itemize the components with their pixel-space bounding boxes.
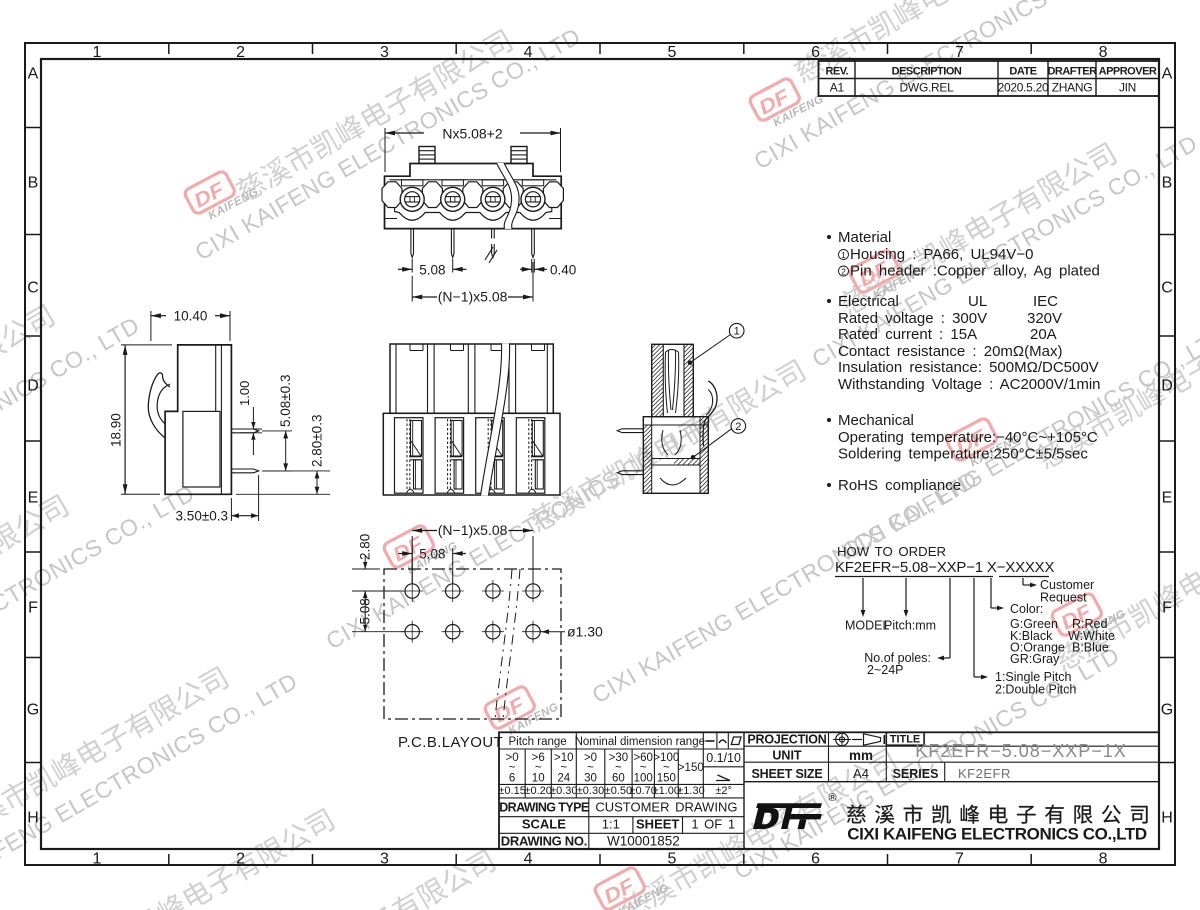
svg-text:1: 1 xyxy=(92,851,101,868)
svg-text:APPROVER: APPROVER xyxy=(1099,66,1157,78)
svg-text:D: D xyxy=(1161,378,1173,395)
svg-text:DESCRIPTION: DESCRIPTION xyxy=(892,66,962,78)
svg-text:SCALE: SCALE xyxy=(522,816,566,831)
svg-text:7: 7 xyxy=(955,851,964,868)
svg-text:DRAWING NO.: DRAWING NO. xyxy=(501,833,587,848)
svg-text:100: 100 xyxy=(634,773,653,785)
svg-text:±0.50: ±0.50 xyxy=(605,785,632,797)
svg-text:150: 150 xyxy=(657,773,676,785)
svg-text:H: H xyxy=(27,810,39,827)
svg-text:G: G xyxy=(27,702,39,719)
svg-text:Nx5.08+2: Nx5.08+2 xyxy=(442,126,503,142)
svg-text:3: 3 xyxy=(380,851,389,868)
svg-text:Rated voltage : 300V: Rated voltage : 300V xyxy=(838,310,987,327)
svg-text:D: D xyxy=(27,378,39,395)
svg-text:±1.30: ±1.30 xyxy=(677,785,704,797)
svg-text:10: 10 xyxy=(532,773,545,785)
svg-text:18.90: 18.90 xyxy=(109,413,124,447)
svg-text:5: 5 xyxy=(667,851,676,868)
svg-text:2~24P: 2~24P xyxy=(867,663,904,677)
svg-text:mm: mm xyxy=(849,748,873,763)
svg-text:ZHANG: ZHANG xyxy=(1052,81,1093,95)
svg-text:B: B xyxy=(28,175,39,192)
svg-text:2020.5.20: 2020.5.20 xyxy=(998,81,1049,95)
svg-text:0.40: 0.40 xyxy=(550,263,576,278)
svg-text:2: 2 xyxy=(236,44,245,61)
svg-text:Operating temperature:−40°C~+1: Operating temperature:−40°C~+105°C xyxy=(838,429,1098,446)
svg-text:2: 2 xyxy=(236,851,245,868)
svg-text:IEC: IEC xyxy=(1033,293,1058,310)
svg-text:CUSTOMER DRAWING: CUSTOMER DRAWING xyxy=(595,800,737,815)
svg-text:Nominal dimension range: Nominal dimension range xyxy=(575,736,705,748)
svg-text:5: 5 xyxy=(667,44,676,61)
svg-text:Housing : PA66, UL94V−0: Housing : PA66, UL94V−0 xyxy=(850,246,1033,263)
svg-text:P.C.B.LAYOUT: P.C.B.LAYOUT xyxy=(398,734,503,751)
svg-text:1: 1 xyxy=(841,250,846,260)
svg-text:®: ® xyxy=(829,792,837,804)
svg-text:7: 7 xyxy=(955,44,964,61)
svg-text:>150: >150 xyxy=(678,762,704,774)
svg-text:DRAFTER: DRAFTER xyxy=(1047,66,1097,78)
svg-text:2.80±0.3: 2.80±0.3 xyxy=(310,415,325,467)
svg-text:±0.30: ±0.30 xyxy=(550,785,577,797)
svg-text:W10001852: W10001852 xyxy=(607,833,680,848)
svg-text:Pin header :Copper alloy, Ag p: Pin header :Copper alloy, Ag plated xyxy=(850,263,1100,280)
svg-text:(N−1)x5.08: (N−1)x5.08 xyxy=(438,289,508,305)
svg-text:UL: UL xyxy=(968,293,987,310)
svg-text:1:1: 1:1 xyxy=(602,816,620,831)
svg-text:5.08±0.3: 5.08±0.3 xyxy=(278,375,293,427)
svg-text:C: C xyxy=(27,280,39,297)
svg-text:B: B xyxy=(1162,175,1173,192)
svg-text:Electrical: Electrical xyxy=(838,293,899,310)
svg-text:F: F xyxy=(28,600,38,617)
svg-text:Withstanding Voltage : AC2000V: Withstanding Voltage : AC2000V/1min xyxy=(838,376,1101,393)
svg-text:A4: A4 xyxy=(853,766,869,781)
svg-text:2: 2 xyxy=(735,421,741,433)
svg-text:JIN: JIN xyxy=(1119,81,1136,95)
svg-text:DRAWING TYPE: DRAWING TYPE xyxy=(499,801,589,815)
svg-text:5.08: 5.08 xyxy=(358,598,373,624)
svg-text:3.50±0.3: 3.50±0.3 xyxy=(176,509,228,524)
svg-text:CIXI KAIFENG ELECTRONICS CO.,L: CIXI KAIFENG ELECTRONICS CO.,LTD xyxy=(847,825,1147,844)
svg-text:Contact resistance : 20mΩ(Max): Contact resistance : 20mΩ(Max) xyxy=(838,343,1062,360)
svg-text:SHEET: SHEET xyxy=(636,816,679,831)
svg-text:6: 6 xyxy=(811,44,820,61)
svg-text:1.00: 1.00 xyxy=(237,381,252,406)
svg-text:4: 4 xyxy=(524,44,533,61)
svg-text:8: 8 xyxy=(1099,44,1108,61)
svg-text:±1.00: ±1.00 xyxy=(653,785,680,797)
svg-text:1: 1 xyxy=(92,44,101,61)
svg-text:±0.15: ±0.15 xyxy=(498,785,525,797)
svg-text:±0.30: ±0.30 xyxy=(577,785,604,797)
svg-text:60: 60 xyxy=(612,773,625,785)
svg-text:PROJECTION: PROJECTION xyxy=(747,733,826,747)
svg-text:Soldering temperature:250°C±5/: Soldering temperature:250°C±5/5sec xyxy=(838,446,1088,463)
svg-text:GR:Gray: GR:Gray xyxy=(1010,652,1060,666)
svg-text:Material: Material xyxy=(838,229,891,246)
svg-text:DATE: DATE xyxy=(1009,66,1036,78)
svg-text:C: C xyxy=(1161,280,1173,297)
svg-text:8: 8 xyxy=(1099,851,1108,868)
svg-text:4: 4 xyxy=(524,851,533,868)
svg-text:A1: A1 xyxy=(830,81,845,95)
svg-text:Insulation resistance: 500MΩ/D: Insulation resistance: 500MΩ/DC500V xyxy=(838,359,1099,376)
svg-text:G: G xyxy=(1161,702,1173,719)
svg-text:ø1.30: ø1.30 xyxy=(567,623,603,639)
svg-text:±0.20: ±0.20 xyxy=(524,785,551,797)
svg-text:6: 6 xyxy=(509,773,515,785)
svg-text:5.08: 5.08 xyxy=(419,547,445,562)
svg-text:Mechanical: Mechanical xyxy=(838,412,914,429)
svg-text:3: 3 xyxy=(380,44,389,61)
svg-text:SHEET SIZE: SHEET SIZE xyxy=(752,767,823,781)
svg-text:(N−1)x5.08: (N−1)x5.08 xyxy=(438,522,508,538)
svg-text:Pitch range: Pitch range xyxy=(509,736,567,748)
svg-text:1: 1 xyxy=(734,326,740,338)
svg-text:A: A xyxy=(1162,66,1173,83)
svg-text:Color:: Color: xyxy=(1010,602,1043,616)
svg-text:10.40: 10.40 xyxy=(174,308,208,323)
svg-text:30: 30 xyxy=(584,773,597,785)
svg-text:REV.: REV. xyxy=(825,66,848,78)
svg-text:2:Double Pitch: 2:Double Pitch xyxy=(995,683,1076,697)
svg-text:2: 2 xyxy=(841,267,846,277)
svg-text:E: E xyxy=(28,490,39,507)
svg-text:SERIES: SERIES xyxy=(893,767,939,781)
svg-text:HOW TO ORDER: HOW TO ORDER xyxy=(837,544,946,559)
svg-text:Pitch:mm: Pitch:mm xyxy=(884,619,936,633)
svg-text:KF2EFR−5.08−XXP−1 X−XXXXX: KF2EFR−5.08−XXP−1 X−XXXXX xyxy=(835,559,1054,576)
svg-text:Request: Request xyxy=(1040,591,1087,605)
svg-text:A: A xyxy=(28,66,39,83)
svg-text:6: 6 xyxy=(811,851,820,868)
svg-text:0.1/10: 0.1/10 xyxy=(706,751,741,765)
svg-text:DWG.REL: DWG.REL xyxy=(900,81,955,95)
svg-text:Rated current : 15A: Rated current : 15A xyxy=(838,326,977,343)
svg-text:UNIT: UNIT xyxy=(772,749,802,763)
svg-text:1 OF 1: 1 OF 1 xyxy=(691,816,735,831)
svg-text:KF2EFR: KF2EFR xyxy=(958,766,1011,781)
svg-text:2.80: 2.80 xyxy=(358,534,373,560)
svg-text:E: E xyxy=(1162,490,1173,507)
svg-text:320V: 320V xyxy=(1027,310,1062,327)
svg-text:20A: 20A xyxy=(1030,326,1057,343)
svg-text:B:Blue: B:Blue xyxy=(1072,641,1109,655)
svg-text:KF2EFR−5.08−XXP−1X: KF2EFR−5.08−XXP−1X xyxy=(915,741,1127,761)
svg-text:H: H xyxy=(1161,810,1173,827)
svg-text:MODEL: MODEL xyxy=(845,619,890,633)
svg-text:RoHS compliance: RoHS compliance xyxy=(838,477,961,494)
svg-text:±2°: ±2° xyxy=(715,785,732,797)
svg-text:24: 24 xyxy=(557,773,570,785)
svg-text:5.08: 5.08 xyxy=(419,263,445,278)
svg-text:F: F xyxy=(1162,600,1172,617)
